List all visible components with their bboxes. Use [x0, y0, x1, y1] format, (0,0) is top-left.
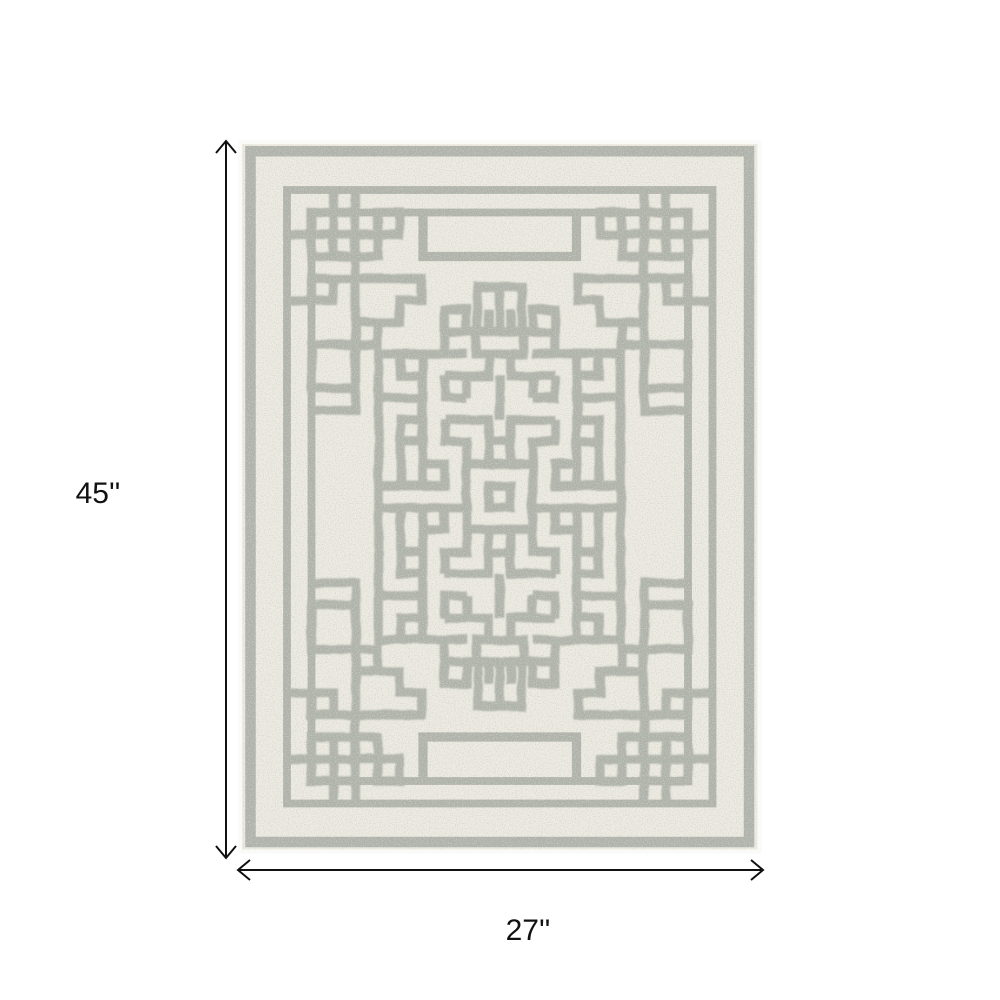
- svg-text:27'': 27'': [506, 914, 551, 947]
- svg-text:45'': 45'': [76, 477, 121, 510]
